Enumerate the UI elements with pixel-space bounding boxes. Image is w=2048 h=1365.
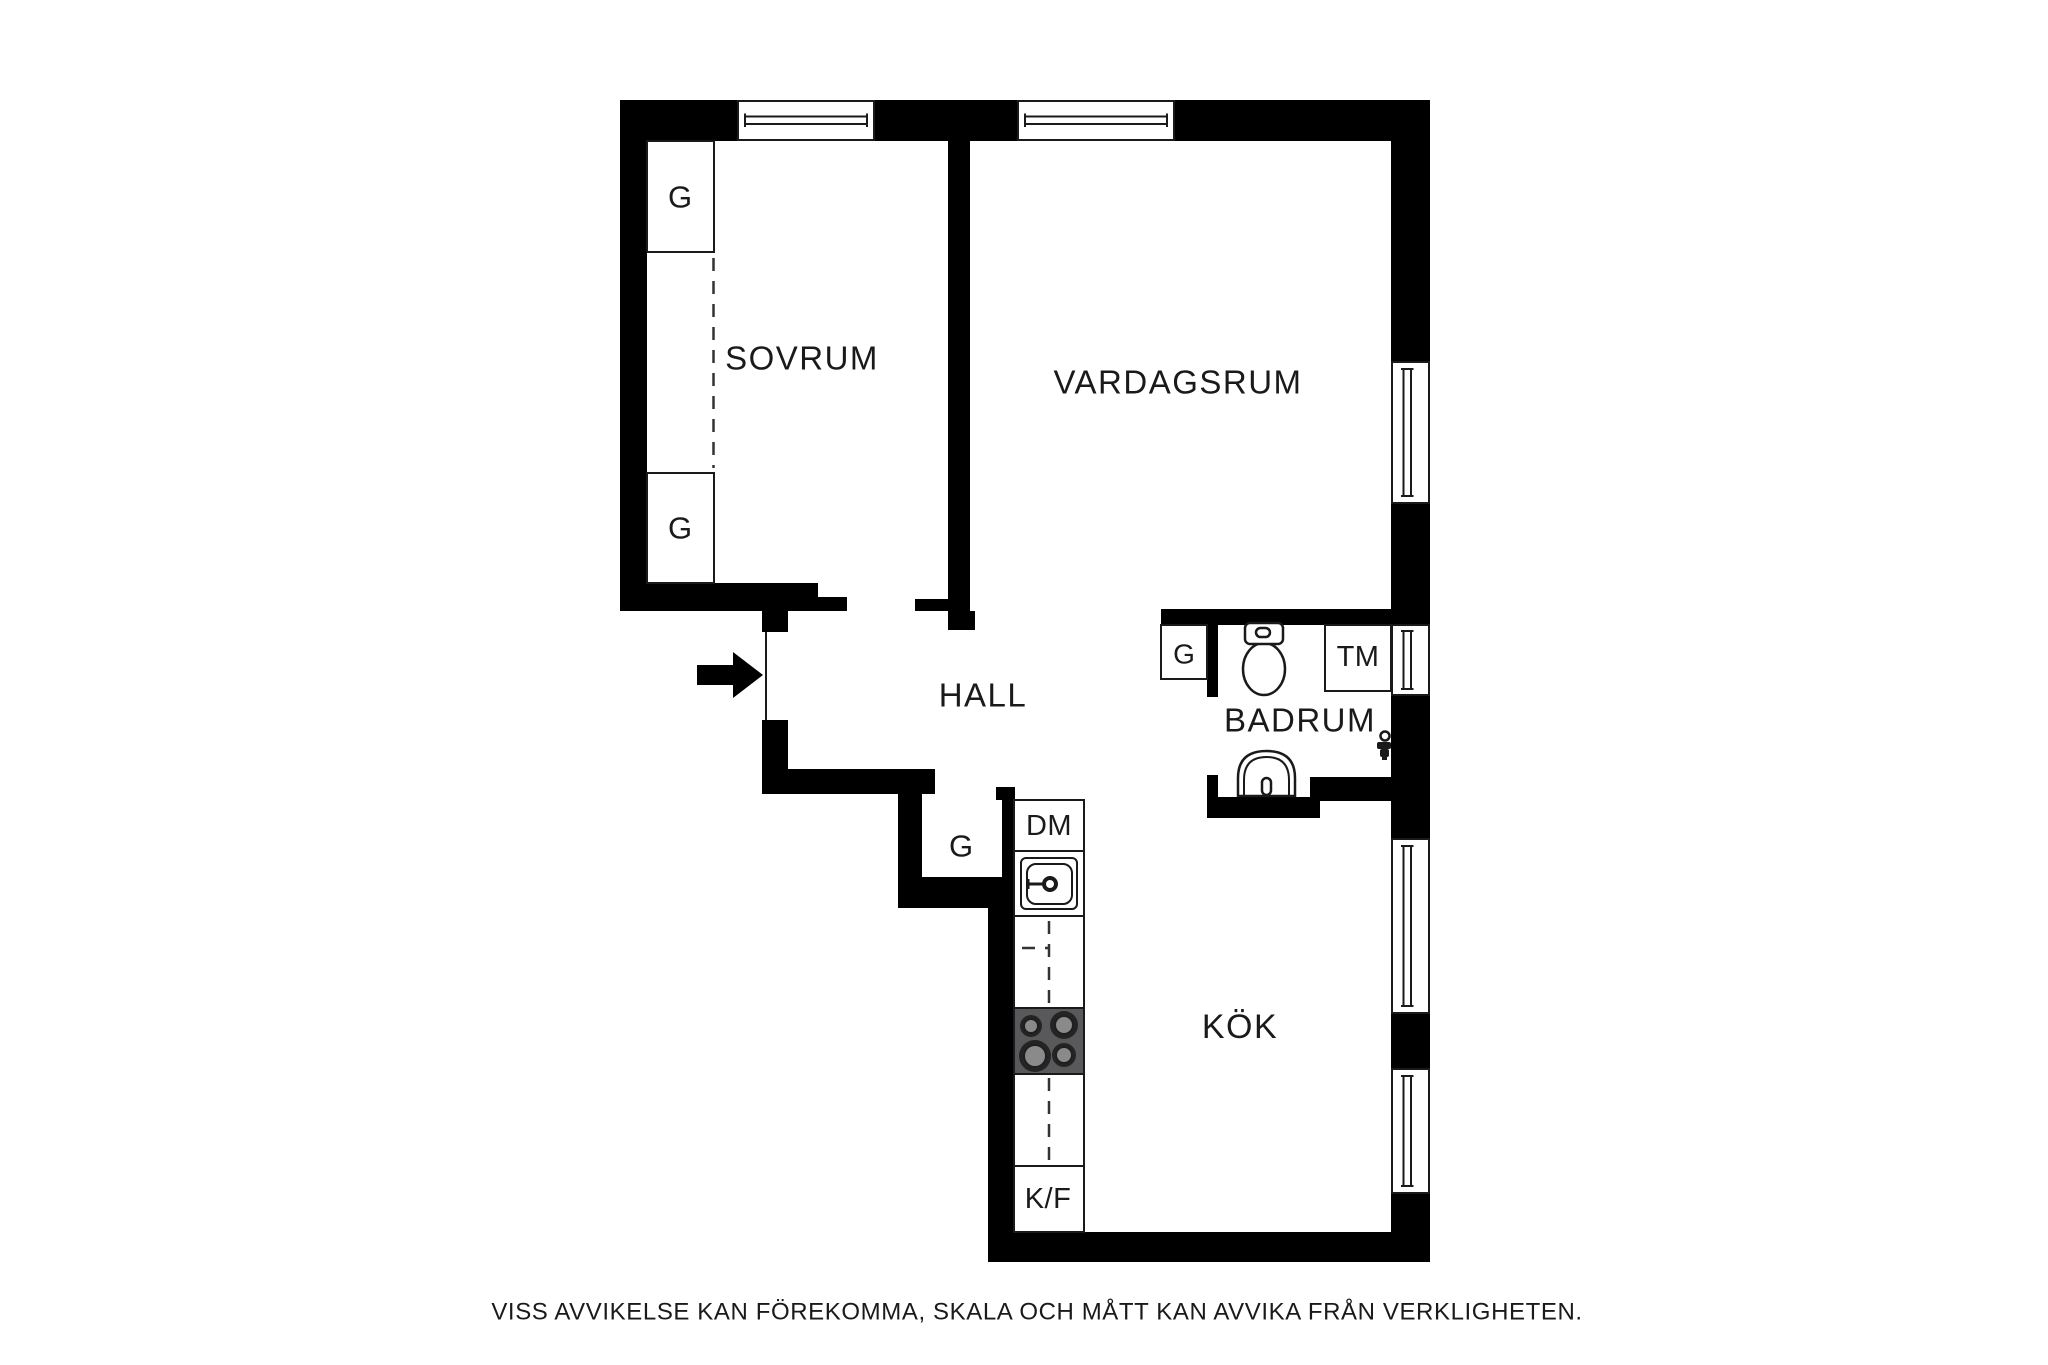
wall-left — [620, 100, 647, 611]
room-label-hall: HALL — [939, 677, 1028, 714]
wall-entrance-lower-stub — [762, 720, 788, 769]
window-icon-kok-upper-right — [1392, 839, 1429, 1013]
wall-sovrum-vardagsrum — [948, 141, 970, 611]
disclaimer-text: VISS AVVIKELSE KAN FÖREKOMMA, SKALA OCH … — [491, 1298, 1582, 1326]
fridge-freezer-label: K/F — [1025, 1183, 1072, 1215]
window-icon-vardagsrum-right — [1392, 362, 1429, 503]
wall-badrum-south-left — [1207, 797, 1320, 818]
room-label-kok: KÖK — [1202, 1008, 1278, 1046]
window-icon-kok-lower-right — [1392, 1069, 1429, 1193]
entrance-arrow-icon — [697, 652, 763, 698]
toilet-icon — [1243, 623, 1285, 695]
wardrobe-label-badrum: G — [1173, 639, 1195, 670]
wall-hall-closet-jamb — [926, 779, 935, 794]
entrance — [697, 632, 766, 720]
room-label-sovrum: SOVRUM — [725, 340, 879, 377]
window-icon-sovrum-top — [738, 101, 874, 140]
wall-partition-foot — [915, 599, 949, 611]
wall-badrum-south-right — [1310, 777, 1393, 801]
wall-entrance-upper-stub — [762, 611, 788, 632]
shower-mixer-icon — [1377, 732, 1391, 761]
stove-icon — [1014, 1008, 1084, 1074]
wardrobe-label-hall: G — [949, 829, 973, 864]
dishwasher-label: DM — [1026, 810, 1072, 842]
wardrobe-label-sovrum-upper: G — [668, 180, 692, 215]
wall-sovrum-door-jamb — [818, 597, 847, 611]
wall-sovrum-south — [620, 583, 818, 611]
room-label-badrum: BADRUM — [1224, 702, 1376, 739]
wall-badrum-west — [1207, 609, 1218, 697]
room-label-vardagsrum: VARDAGSRUM — [1053, 364, 1302, 401]
floor-plan-page: SOVRUM VARDAGSRUM HALL BADRUM KÖK G G G … — [0, 0, 2048, 1365]
wall-hall-south — [762, 769, 935, 794]
wall-partition-stub — [948, 611, 975, 630]
wall-kitchen-west — [988, 877, 1015, 1262]
kitchen-counter — [1014, 800, 1084, 1232]
wall-bottom — [988, 1232, 1430, 1262]
washing-machine-label: TM — [1337, 641, 1380, 673]
washbasin-icon — [1238, 751, 1295, 796]
window-icon-badrum-right — [1392, 625, 1429, 695]
wall-kitchen-west-cap — [996, 787, 1015, 800]
floor-plan: SOVRUM VARDAGSRUM HALL BADRUM KÖK G G G … — [0, 0, 2048, 1365]
window-icon-vardagsrum-top — [1018, 101, 1174, 140]
wardrobe-label-sovrum-lower: G — [668, 511, 692, 546]
